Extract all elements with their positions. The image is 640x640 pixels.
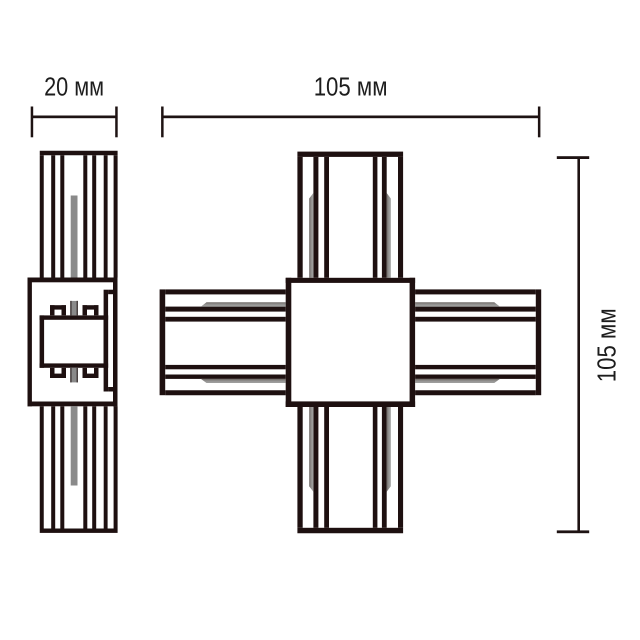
svg-text:105 мм: 105 мм — [594, 308, 622, 382]
svg-text:20 мм: 20 мм — [44, 73, 104, 101]
svg-text:105 мм: 105 мм — [314, 73, 388, 101]
